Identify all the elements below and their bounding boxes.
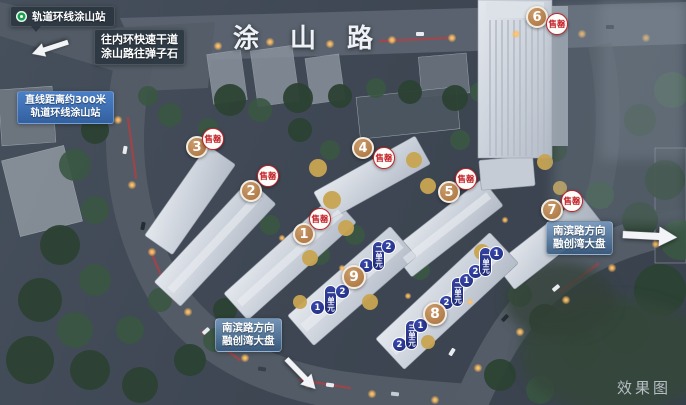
direction-arrow-nanbin-right xyxy=(622,225,679,248)
unit-entrance-number: 1 xyxy=(310,300,325,315)
building-marker-8: 8 xyxy=(423,302,447,326)
sold-out-badge-2: 售罄 xyxy=(257,165,279,187)
road-name-tushan: 涂山路 xyxy=(233,18,404,55)
building-marker-4: 4 xyxy=(352,137,374,159)
callout-line: 融创湾大盘 xyxy=(222,335,275,348)
unit-entrance-number: 1 xyxy=(489,246,504,261)
unit-entrance-number: 2 xyxy=(381,239,396,254)
callout-line: 涂山路往弹子石 xyxy=(101,47,178,61)
callout-metro-station: 轨道环线涂山站 xyxy=(10,6,115,27)
callout-line: 南滨路方向 xyxy=(553,225,606,238)
metro-logo-icon xyxy=(16,11,27,22)
building-marker-7: 7 xyxy=(541,199,563,221)
aerial-site-rendering: 涂山路 轨道环线涂山站 往内环快速干道 涂山路往弹子石 直线距离约300米 轨道… xyxy=(0,0,686,405)
callout-nanbin-bottom: 南滨路方向 融创湾大盘 xyxy=(215,318,282,352)
callout-pointer xyxy=(31,26,41,32)
sold-out-badge-6: 售罄 xyxy=(546,13,568,35)
callout-station-distance: 直线距离约300米 轨道环线涂山站 xyxy=(17,91,114,124)
rendering-watermark: 效果图 xyxy=(617,377,671,398)
callout-line: 南滨路方向 xyxy=(222,322,275,335)
sold-out-badge-4: 售罄 xyxy=(373,147,395,169)
callout-line: 直线距离约300米 xyxy=(25,95,106,108)
sold-out-badge-1: 售罄 xyxy=(309,208,331,230)
callout-expressway: 往内环快速干道 涂山路往弹子石 xyxy=(94,29,185,65)
sold-out-badge-3: 售罄 xyxy=(202,128,224,150)
callout-nanbin-right: 南滨路方向 融创湾大盘 xyxy=(546,221,613,255)
building-marker-6: 6 xyxy=(526,6,548,28)
building-marker-2: 2 xyxy=(240,180,262,202)
sold-out-badge-5: 售罄 xyxy=(455,168,477,190)
callout-line: 轨道环线涂山站 xyxy=(25,108,106,121)
building-marker-9: 9 xyxy=(342,265,366,289)
metro-station-label: 轨道环线涂山站 xyxy=(32,9,106,24)
callout-line: 融创湾大盘 xyxy=(553,238,606,251)
callout-line: 往内环快速干道 xyxy=(101,33,178,47)
sold-out-badge-7: 售罄 xyxy=(561,190,583,212)
